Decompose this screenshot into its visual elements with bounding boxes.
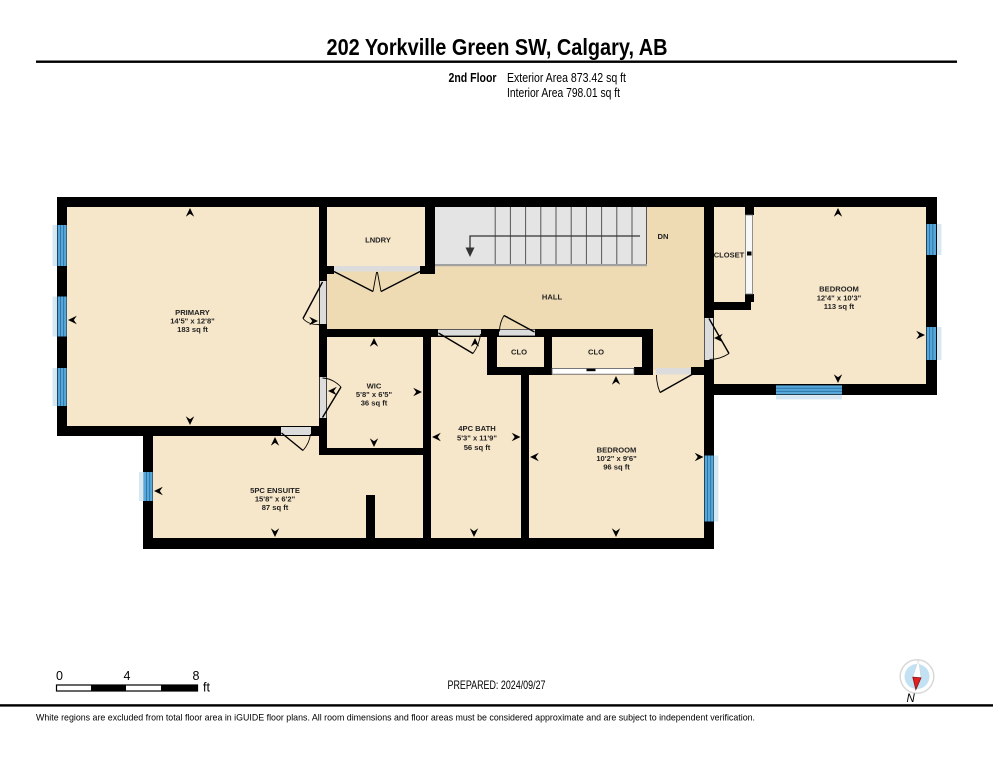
svg-text:36 sq ft: 36 sq ft	[361, 399, 388, 408]
svg-text:56 sq ft: 56 sq ft	[464, 443, 491, 452]
svg-text:5'3" x 11'9": 5'3" x 11'9"	[457, 434, 497, 443]
svg-text:ft: ft	[203, 681, 210, 695]
svg-text:CLO: CLO	[588, 348, 604, 357]
svg-text:8: 8	[193, 669, 200, 683]
svg-text:4: 4	[124, 669, 131, 683]
svg-text:LNDRY: LNDRY	[365, 236, 391, 245]
svg-text:CLO: CLO	[511, 348, 527, 357]
svg-text:CLOSET: CLOSET	[714, 251, 745, 260]
svg-text:113 sq ft: 113 sq ft	[824, 302, 855, 311]
svg-text:PREPARED: 2024/09/27: PREPARED: 2024/09/27	[448, 678, 546, 692]
svg-text:DN: DN	[658, 232, 669, 241]
svg-text:Interior Area 798.01 sq ft: Interior Area 798.01 sq ft	[507, 86, 620, 100]
svg-text:87 sq ft: 87 sq ft	[262, 503, 289, 512]
svg-text:0: 0	[56, 669, 63, 683]
svg-text:Exterior Area 873.42 sq ft: Exterior Area 873.42 sq ft	[507, 71, 626, 85]
svg-text:4PC BATH: 4PC BATH	[458, 424, 495, 433]
svg-text:BEDROOM: BEDROOM	[819, 285, 859, 294]
svg-text:202 Yorkville Green SW, Calgar: 202 Yorkville Green SW, Calgary, AB	[327, 34, 668, 60]
svg-text:183 sq ft: 183 sq ft	[177, 325, 208, 334]
svg-text:HALL: HALL	[542, 293, 563, 302]
svg-text:2nd Floor: 2nd Floor	[449, 71, 497, 85]
svg-text:White regions are excluded fro: White regions are excluded from total fl…	[36, 713, 755, 723]
svg-text:N: N	[907, 693, 916, 705]
svg-text:96 sq ft: 96 sq ft	[603, 463, 630, 472]
